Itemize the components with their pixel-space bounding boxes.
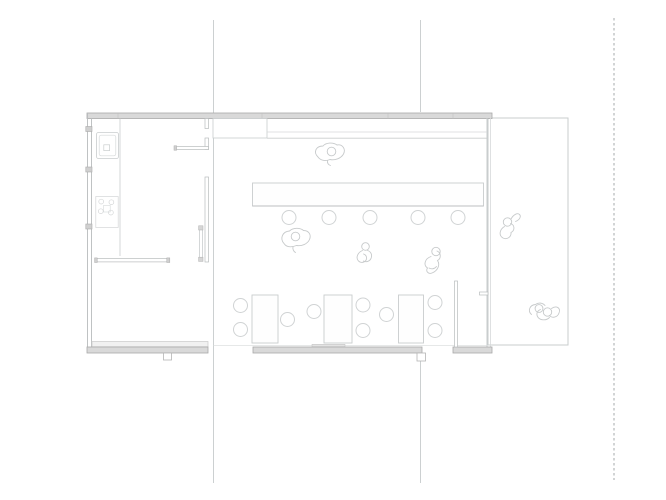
left-wall-jamb xyxy=(86,127,92,132)
person-near-bar-top-body xyxy=(327,161,330,166)
bar-stool xyxy=(451,211,465,225)
person-middle-left-head xyxy=(291,232,300,241)
door-hinge-bottom xyxy=(199,257,203,261)
person-near-bar-top-body xyxy=(316,143,345,160)
chair xyxy=(281,313,295,327)
wc-wall-stub xyxy=(480,292,489,295)
door-leaf xyxy=(200,228,203,261)
person-middle-right-body xyxy=(429,267,437,269)
chair xyxy=(428,324,442,338)
top-wall xyxy=(87,113,492,119)
partition-main xyxy=(205,177,209,262)
partition-stub-top xyxy=(205,119,209,129)
left-wall-jamb xyxy=(86,224,92,229)
partition-arm-cap xyxy=(174,146,177,150)
person-middle-left-body xyxy=(293,247,296,253)
person-middle-left-body xyxy=(282,228,310,247)
sink-outer xyxy=(97,133,119,159)
chair xyxy=(380,308,394,322)
exterior-post-left xyxy=(164,353,172,360)
floor-plan-svg xyxy=(0,0,666,500)
kitchen-fixtures xyxy=(96,119,120,257)
chair xyxy=(356,298,370,312)
person-near-bar-top-head xyxy=(327,147,336,156)
bar-stool xyxy=(363,211,377,225)
chair xyxy=(356,324,370,338)
entry-closet xyxy=(213,119,267,139)
bar-counter xyxy=(253,183,484,206)
bottom-wall-middle xyxy=(253,347,422,353)
kitchen-wall-cap-left xyxy=(95,258,98,263)
exterior-post-right xyxy=(417,353,426,361)
kitchen-wall xyxy=(96,259,168,262)
interior-partitions xyxy=(95,119,488,348)
bar-area xyxy=(253,183,484,225)
dining-tables xyxy=(234,295,443,343)
bar-stool xyxy=(411,211,425,225)
chair xyxy=(307,305,321,319)
door-hinge-top xyxy=(199,226,203,230)
bottom-wall-inner-band xyxy=(92,342,208,347)
dining-table xyxy=(324,295,352,343)
person-middle-center-body xyxy=(364,251,372,262)
left-wall-jamb xyxy=(86,167,92,172)
dining-table xyxy=(399,295,424,343)
kitchen-wall-cap-right xyxy=(167,258,170,263)
person-near-bar-top xyxy=(316,143,345,165)
bar-stool xyxy=(322,211,336,225)
dining-table xyxy=(252,295,278,343)
person-middle-right-head xyxy=(432,247,440,255)
bar-stool xyxy=(282,211,296,225)
bottom-wall-left xyxy=(87,347,208,353)
partition-l-arm xyxy=(176,147,209,150)
person-middle-center-body xyxy=(357,251,367,263)
floor-plan-page xyxy=(0,0,666,500)
person-middle-right xyxy=(425,247,440,273)
chair xyxy=(428,296,442,310)
chair xyxy=(234,299,248,313)
wc-wall xyxy=(455,281,458,347)
person-middle-center xyxy=(357,243,371,263)
bottom-wall-right xyxy=(453,347,492,353)
person-middle-left xyxy=(282,228,310,252)
chair xyxy=(234,323,248,337)
person-middle-center-head xyxy=(362,243,370,251)
